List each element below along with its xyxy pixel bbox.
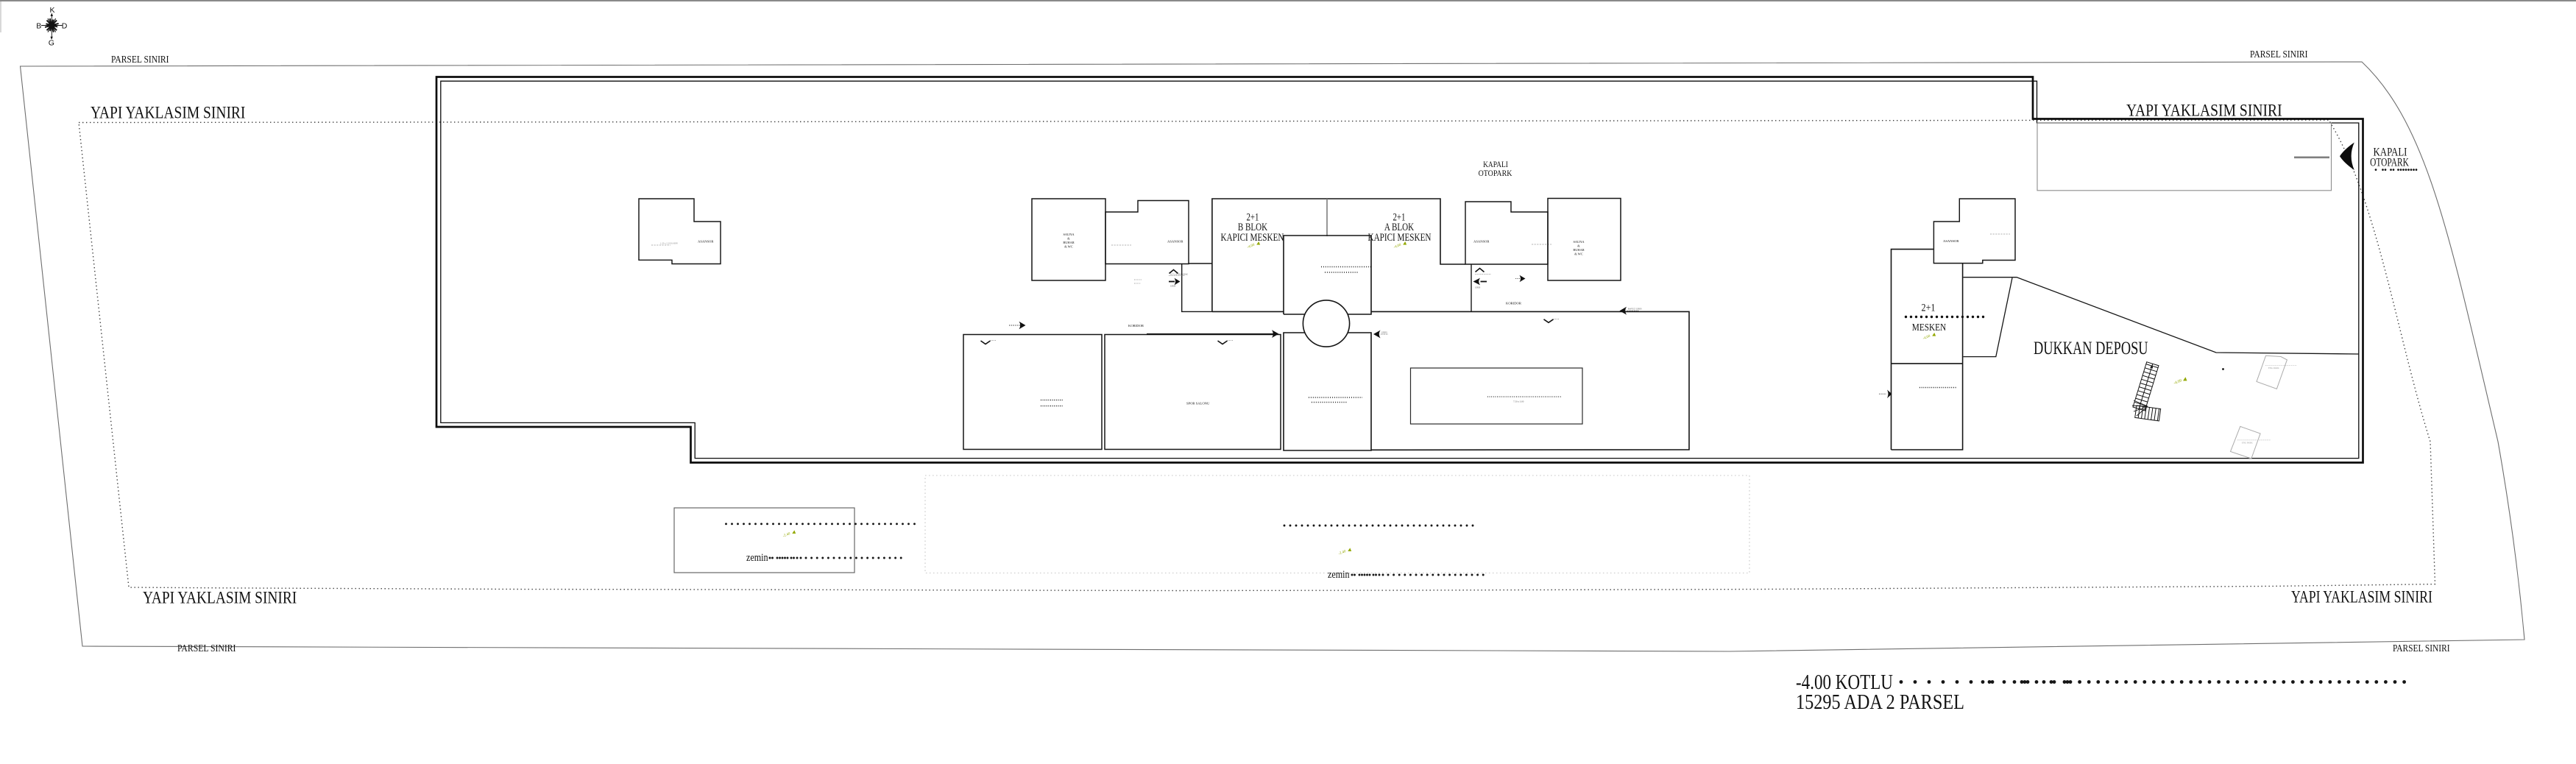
svg-text:GIRIS: GIRIS (1475, 287, 1481, 289)
svg-text:YAPI YAKLASIM SINIRI: YAPI YAKLASIM SINIRI (143, 588, 297, 607)
svg-text:1.20 x 2.20 KABIN: 1.20 x 2.20 KABIN (660, 242, 679, 245)
svg-text:BUHAR: BUHAR (1573, 248, 1584, 252)
svg-text:zemin: zemin (1328, 568, 1350, 581)
svg-text:YAPI YAKLASIM SINIRI: YAPI YAKLASIM SINIRI (2126, 101, 2282, 120)
svg-text:KORIDOR: KORIDOR (1506, 302, 1522, 305)
svg-text:&: & (1577, 244, 1580, 248)
svg-text:OTOPARK: OTOPARK (1479, 169, 1512, 178)
svg-text:7.50 x 3.00: 7.50 x 3.00 (1513, 400, 1524, 403)
svg-text:ASANSOR: ASANSOR (698, 240, 714, 244)
svg-text:SAUNA: SAUNA (1063, 233, 1075, 236)
svg-text:D: D (62, 22, 68, 31)
svg-text:zemin: zemin (746, 551, 768, 564)
svg-text:OTOPARK: OTOPARK (2370, 157, 2409, 169)
svg-text:& WC: & WC (1064, 245, 1073, 249)
svg-text:ASANSOR: ASANSOR (1473, 240, 1490, 244)
svg-text:B: B (36, 22, 41, 31)
svg-text:DUKKAN DEPOSU: DUKKAN DEPOSU (2034, 337, 2148, 358)
svg-text:& WC: & WC (1574, 252, 1583, 256)
svg-text:PARSEL SINIRI: PARSEL SINIRI (111, 54, 169, 65)
svg-text:PARSEL SINIRI: PARSEL SINIRI (2393, 643, 2450, 654)
svg-text:MESKEN: MESKEN (1912, 322, 1946, 333)
svg-text:SAUNA: SAUNA (1573, 240, 1585, 244)
svg-text:KORIDOR: KORIDOR (1128, 324, 1144, 328)
svg-text:YAPI YAKLASIM SINIRI: YAPI YAKLASIM SINIRI (2291, 587, 2432, 606)
svg-text:GIRIS: GIRIS (1170, 286, 1176, 288)
svg-text:PARSEL SINIRI: PARSEL SINIRI (177, 643, 236, 654)
svg-text:K: K (49, 6, 54, 15)
svg-text:YAPI YAKLASIM SINIRI: YAPI YAKLASIM SINIRI (91, 103, 245, 122)
svg-text:SPOR SALONU: SPOR SALONU (1186, 402, 1210, 406)
svg-text:&: & (1067, 237, 1070, 241)
svg-text:ENG PARK: ENG PARK (2268, 367, 2279, 369)
svg-text:KAPICI MESKEN: KAPICI MESKEN (1221, 232, 1284, 244)
svg-text:ASANSOR: ASANSOR (1167, 240, 1183, 244)
svg-text:2+1: 2+1 (1922, 301, 1936, 313)
svg-text:GIRIS: GIRIS (1381, 331, 1387, 334)
svg-text:KAPICI MESKEN: KAPICI MESKEN (1368, 232, 1432, 244)
svg-text:G: G (49, 39, 54, 48)
svg-text:PARSEL SINIRI: PARSEL SINIRI (2250, 49, 2307, 60)
svg-text:HAVUZ GIRIS: HAVUZ GIRIS (1628, 308, 1642, 311)
svg-text:ASANSOR: ASANSOR (1943, 239, 1959, 243)
svg-text:0.15 x 8 BASAMAK: 0.15 x 8 BASAMAK (1170, 273, 1188, 275)
svg-text:ENG PARK: ENG PARK (2242, 442, 2253, 445)
svg-text:BUHAR: BUHAR (1063, 241, 1074, 244)
svg-text:15295 ADA 2 PARSEL: 15295 ADA 2 PARSEL (1796, 690, 1964, 713)
